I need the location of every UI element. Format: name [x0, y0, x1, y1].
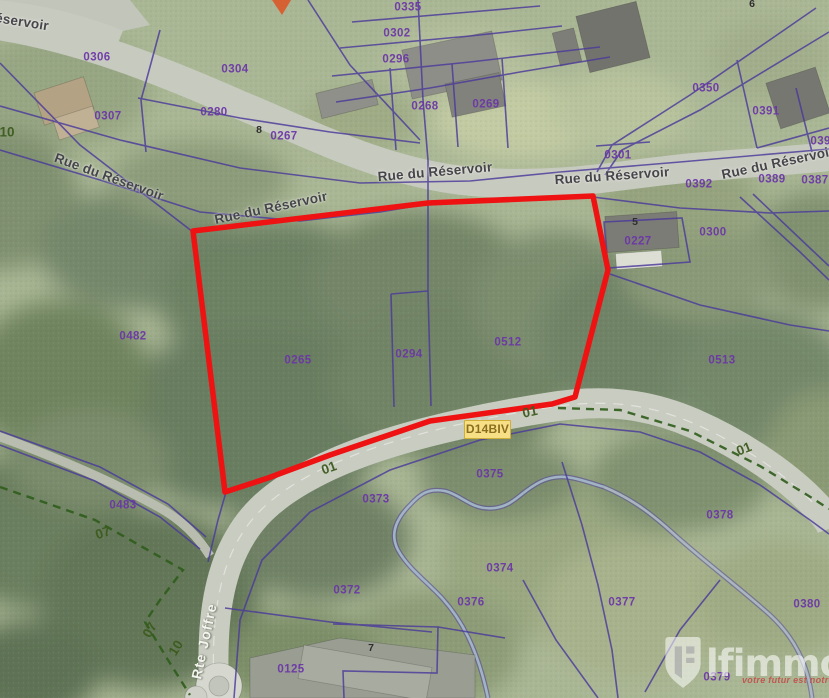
aerial-base: [0, 0, 829, 698]
cadastral-map: 0306030403070280026703350302029602680269…: [0, 0, 829, 698]
map-canvas: [0, 0, 829, 698]
watermark: lfimmo votre futur est notre pas: [660, 612, 829, 698]
grain-overlay: [0, 0, 829, 698]
route-number-badge: D14BIV: [464, 420, 511, 439]
watermark-tagline: votre futur est notre pas: [742, 675, 829, 685]
alfimmo-logo-icon: [662, 636, 704, 690]
